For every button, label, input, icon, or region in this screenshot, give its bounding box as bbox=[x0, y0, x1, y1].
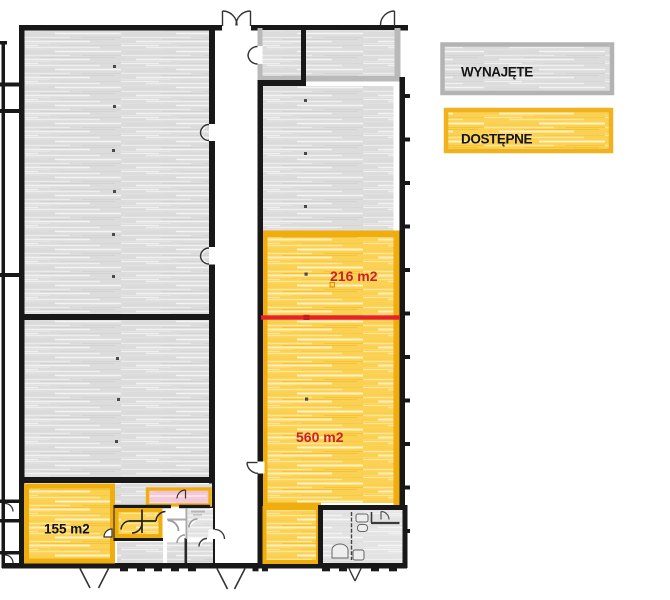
svg-text:155 m2: 155 m2 bbox=[44, 522, 90, 537]
svg-text:DOSTĘPNE: DOSTĘPNE bbox=[461, 132, 532, 147]
svg-text:WYNAJĘTE: WYNAJĘTE bbox=[461, 65, 533, 80]
svg-text:560 m2: 560 m2 bbox=[296, 429, 344, 445]
svg-text:216 m2: 216 m2 bbox=[330, 268, 378, 284]
